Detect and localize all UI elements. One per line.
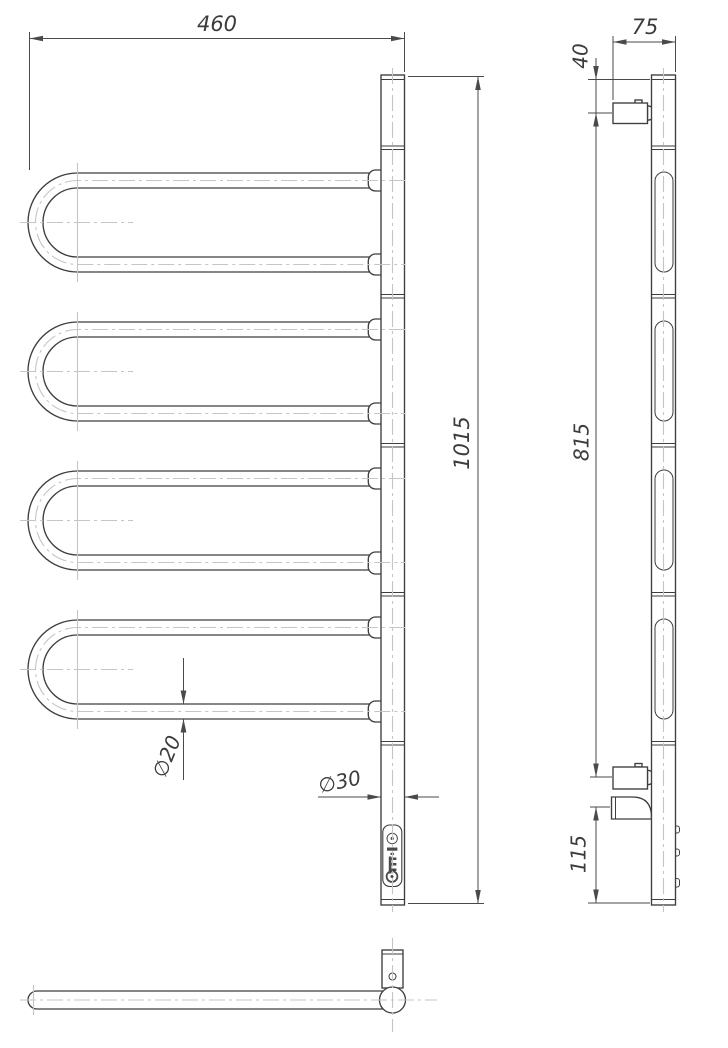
heater-inlet xyxy=(612,797,652,819)
upper-wall-bracket xyxy=(613,100,655,124)
dim-tube-diameter-label: ∅20 xyxy=(147,732,185,781)
drawing-canvas: 460 1015 ∅20 ∅30 75 xyxy=(0,0,728,1048)
dim-side-span-label: 815 xyxy=(570,423,594,461)
dim-post-diameter-label: ∅30 xyxy=(316,765,363,797)
dim-side-top-offset-label: 40 xyxy=(569,43,593,68)
dim-front-width: 460 xyxy=(30,12,405,170)
dim-side-bottom-offset-label: 115 xyxy=(567,835,591,873)
centerlines xyxy=(20,68,664,1032)
dim-front-height-label: 1015 xyxy=(450,416,474,469)
dim-front-height: 1015 xyxy=(408,77,484,904)
bottom-view xyxy=(28,950,406,1013)
lower-wall-bracket xyxy=(613,764,655,790)
technical-drawing-sheet: 460 1015 ∅20 ∅30 75 xyxy=(0,0,728,1048)
dim-side-span: 815 xyxy=(570,113,613,777)
dim-front-width-label: 460 xyxy=(197,12,237,36)
dim-side-depth-label: 75 xyxy=(632,15,659,39)
dim-post-diameter: ∅30 xyxy=(316,765,439,799)
dim-side-bottom-offset: 115 xyxy=(567,807,651,903)
side-view xyxy=(612,75,680,905)
